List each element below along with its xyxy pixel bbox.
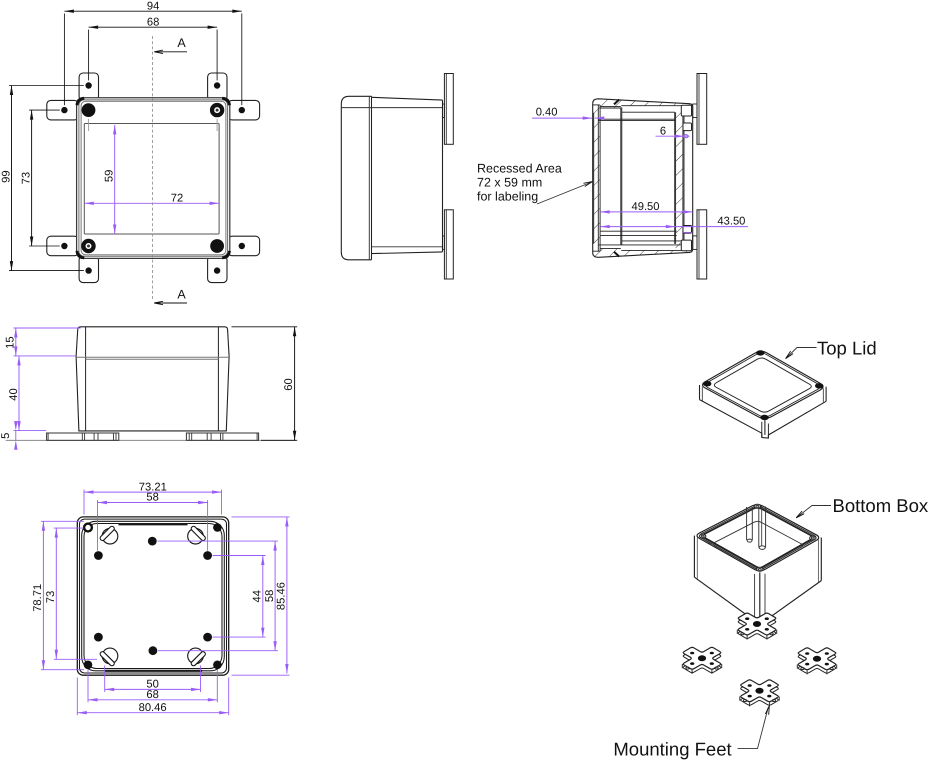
svg-text:15: 15	[5, 336, 17, 348]
svg-text:for labeling: for labeling	[477, 190, 538, 204]
svg-text:99: 99	[0, 170, 12, 182]
svg-text:Bottom Box: Bottom Box	[833, 495, 929, 516]
svg-text:68: 68	[146, 689, 158, 701]
svg-text:78.71: 78.71	[32, 584, 44, 612]
svg-text:6: 6	[660, 125, 666, 137]
svg-text:Top Lid: Top Lid	[817, 337, 877, 358]
svg-text:94: 94	[147, 1, 159, 13]
svg-text:Mounting Feet: Mounting Feet	[613, 739, 731, 760]
svg-text:68: 68	[147, 17, 159, 29]
svg-text:44: 44	[252, 590, 264, 602]
svg-text:72: 72	[171, 193, 183, 205]
svg-text:58: 58	[146, 492, 158, 504]
svg-text:59: 59	[104, 170, 116, 182]
svg-text:58: 58	[264, 590, 276, 602]
svg-text:43.50: 43.50	[717, 216, 745, 228]
svg-text:A: A	[177, 287, 186, 301]
svg-text:Recessed Area: Recessed Area	[477, 162, 562, 176]
svg-text:85.46: 85.46	[276, 582, 288, 610]
svg-text:49.50: 49.50	[632, 201, 660, 213]
svg-text:72 x 59 mm: 72 x 59 mm	[477, 176, 542, 190]
svg-text:5: 5	[0, 433, 12, 439]
svg-text:A: A	[177, 36, 186, 50]
svg-text:40: 40	[8, 388, 20, 400]
svg-text:73: 73	[45, 591, 57, 603]
svg-text:0.40: 0.40	[536, 107, 558, 119]
svg-text:73: 73	[20, 172, 32, 184]
svg-text:80.46: 80.46	[139, 702, 167, 714]
svg-text:60: 60	[283, 378, 295, 390]
